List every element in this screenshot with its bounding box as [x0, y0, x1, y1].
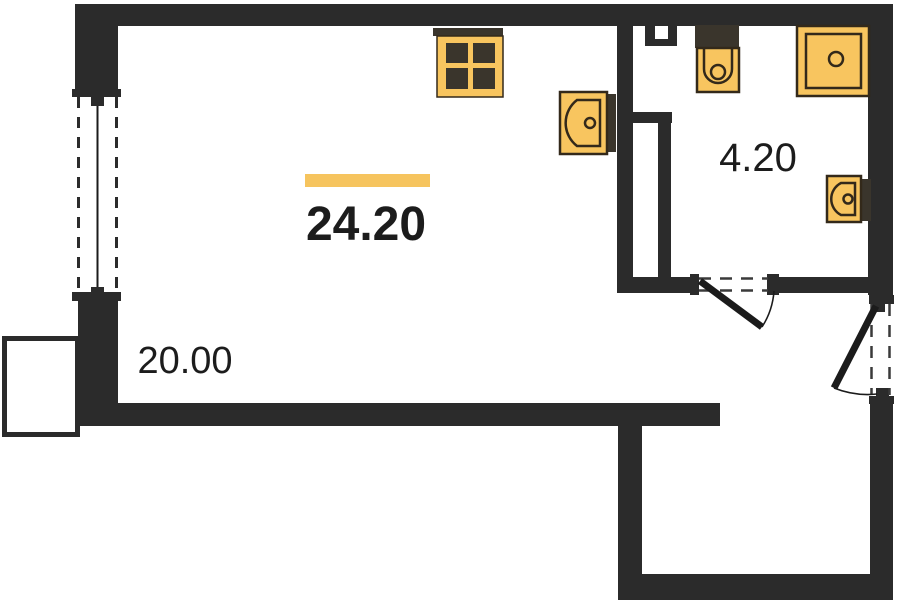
total-area-label: 24.20	[306, 198, 426, 251]
window-sill-top	[72, 89, 121, 97]
window-sill-bottom	[72, 292, 121, 301]
floor-plan: 24.20 4.20 20.00	[0, 0, 897, 600]
bathroom-wall-right-segment	[779, 277, 870, 293]
bathroom-area-label: 4.20	[719, 136, 797, 180]
shower-icon	[797, 26, 869, 96]
entrance-frame-top	[869, 295, 894, 304]
window	[79, 96, 117, 297]
bathroom-door-frame-right	[767, 274, 779, 295]
right-wall-lower	[870, 403, 893, 600]
right-wall-upper	[868, 4, 893, 295]
entrance-door	[834, 304, 890, 395]
left-wall-lower	[78, 301, 118, 426]
sink-icon	[560, 92, 616, 154]
duct-wall-right	[658, 123, 671, 277]
hallway-left-wall	[618, 426, 642, 600]
stove-icon	[433, 28, 503, 97]
hallway-bottom-wall	[618, 574, 893, 600]
duct-wall-top	[632, 112, 672, 123]
left-wall-upper	[75, 4, 118, 92]
bottom-wall-main	[115, 403, 720, 426]
bathroom-door-frame-left	[690, 274, 699, 295]
top-wall	[75, 4, 893, 26]
vent-shaft	[645, 26, 677, 46]
bathroom-wall-left-segment	[617, 277, 691, 293]
bathroom-partition-wall	[617, 26, 633, 293]
entrance-frame-bottom	[869, 396, 894, 404]
balcony	[5, 339, 78, 435]
entrance-hinge-bottom	[876, 388, 889, 396]
bathroom-door	[699, 279, 774, 328]
floor-plan-page: 24.20 4.20 20.00	[0, 0, 897, 600]
washbasin-icon	[827, 176, 871, 222]
area-highlight-bar	[305, 174, 430, 187]
main-room-area-label: 20.00	[137, 340, 232, 382]
toilet-icon	[695, 25, 739, 92]
